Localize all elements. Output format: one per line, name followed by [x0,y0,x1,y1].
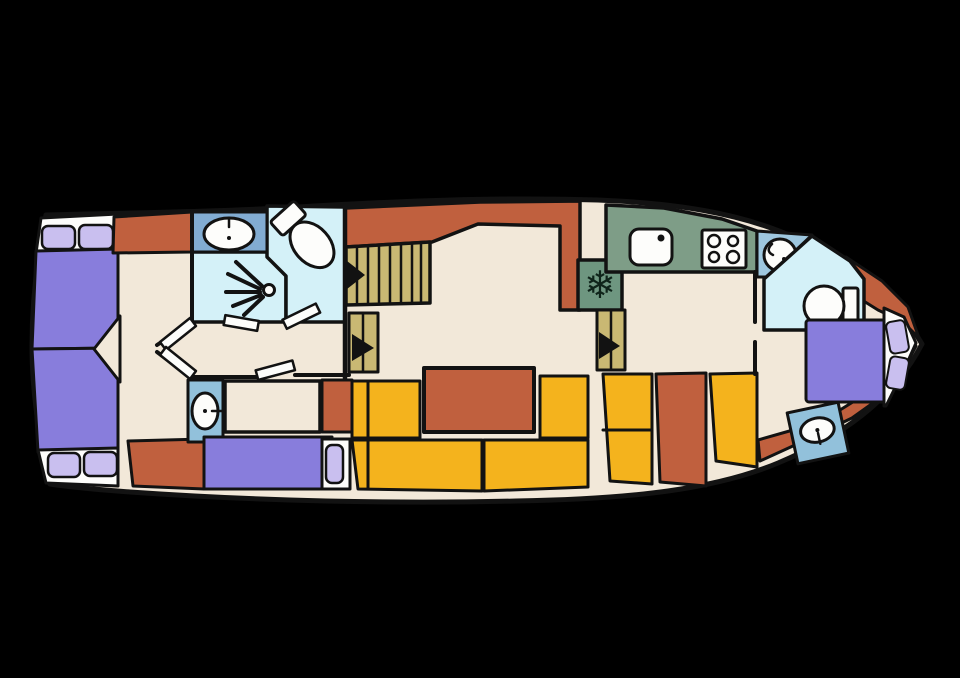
step-down-right [597,310,625,370]
bench-seat [352,440,482,491]
pillow-icon [885,356,909,391]
step-down-left [349,313,378,372]
hull-band-salon-left [322,380,352,432]
companionway-stairs [346,242,430,305]
hull-band-bow-top [113,212,192,253]
seat-back-panel [656,373,706,486]
washbasin-icon [204,218,254,250]
pillow-icon [885,320,909,355]
hull-band-mid-bottom-left [128,439,204,489]
dinette-table [424,368,534,432]
galley-sink-icon [630,229,672,265]
floor-plan-canvas: ❄ [0,0,960,678]
boat-floor-plan: ❄ [0,0,960,678]
bench-seat [484,440,588,491]
single-bed-mid [204,437,332,489]
stove-icon [702,230,746,268]
bench-seat [710,373,757,467]
bench-seat [352,381,420,438]
pillow-icon [326,445,343,483]
wardrobe [225,381,320,432]
bench-seat [540,376,588,438]
double-bed-aft [806,320,888,402]
washbasin-cabinet-aft-cabin [787,402,849,464]
